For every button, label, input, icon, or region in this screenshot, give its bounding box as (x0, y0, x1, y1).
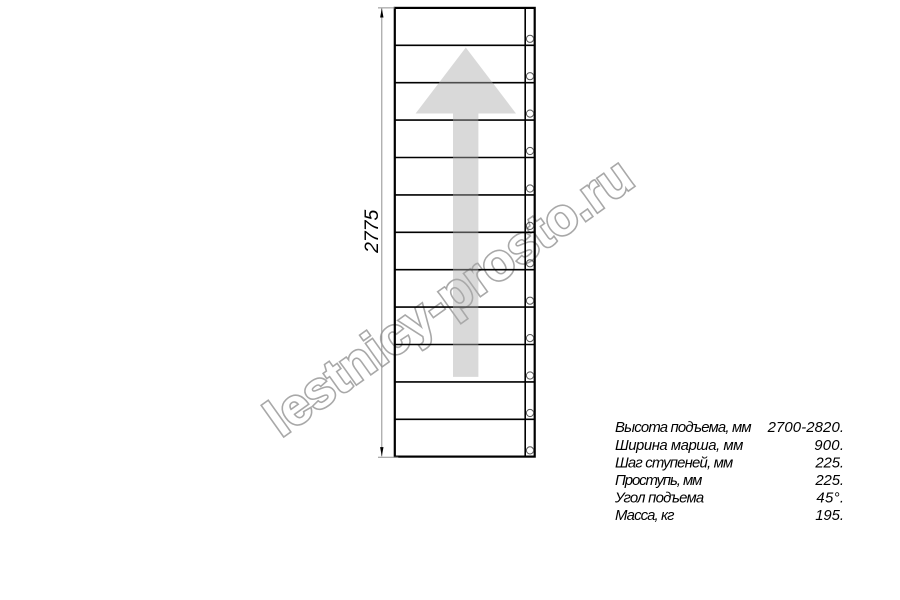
svg-text:225.: 225. (814, 473, 844, 489)
svg-text:2700-2820.: 2700-2820. (767, 420, 844, 436)
svg-text:Ширина марша, мм: Ширина марша, мм (615, 438, 743, 454)
svg-text:Проступь, мм: Проступь, мм (615, 473, 702, 489)
svg-text:45°.: 45°. (816, 491, 844, 507)
svg-text:Масса, кг: Масса, кг (615, 508, 675, 524)
svg-text:900.: 900. (814, 438, 844, 454)
svg-text:195.: 195. (815, 508, 844, 524)
svg-text:lestnicy-prosto.ru: lestnicy-prosto.ru (254, 146, 643, 447)
svg-text:Шаг ступеней, мм: Шаг ступеней, мм (615, 455, 733, 471)
svg-text:225.: 225. (814, 455, 844, 471)
svg-text:2775: 2775 (361, 210, 383, 254)
svg-text:Угол подъема: Угол подъема (614, 491, 704, 507)
svg-text:Высота подъема, мм: Высота подъема, мм (615, 420, 752, 436)
